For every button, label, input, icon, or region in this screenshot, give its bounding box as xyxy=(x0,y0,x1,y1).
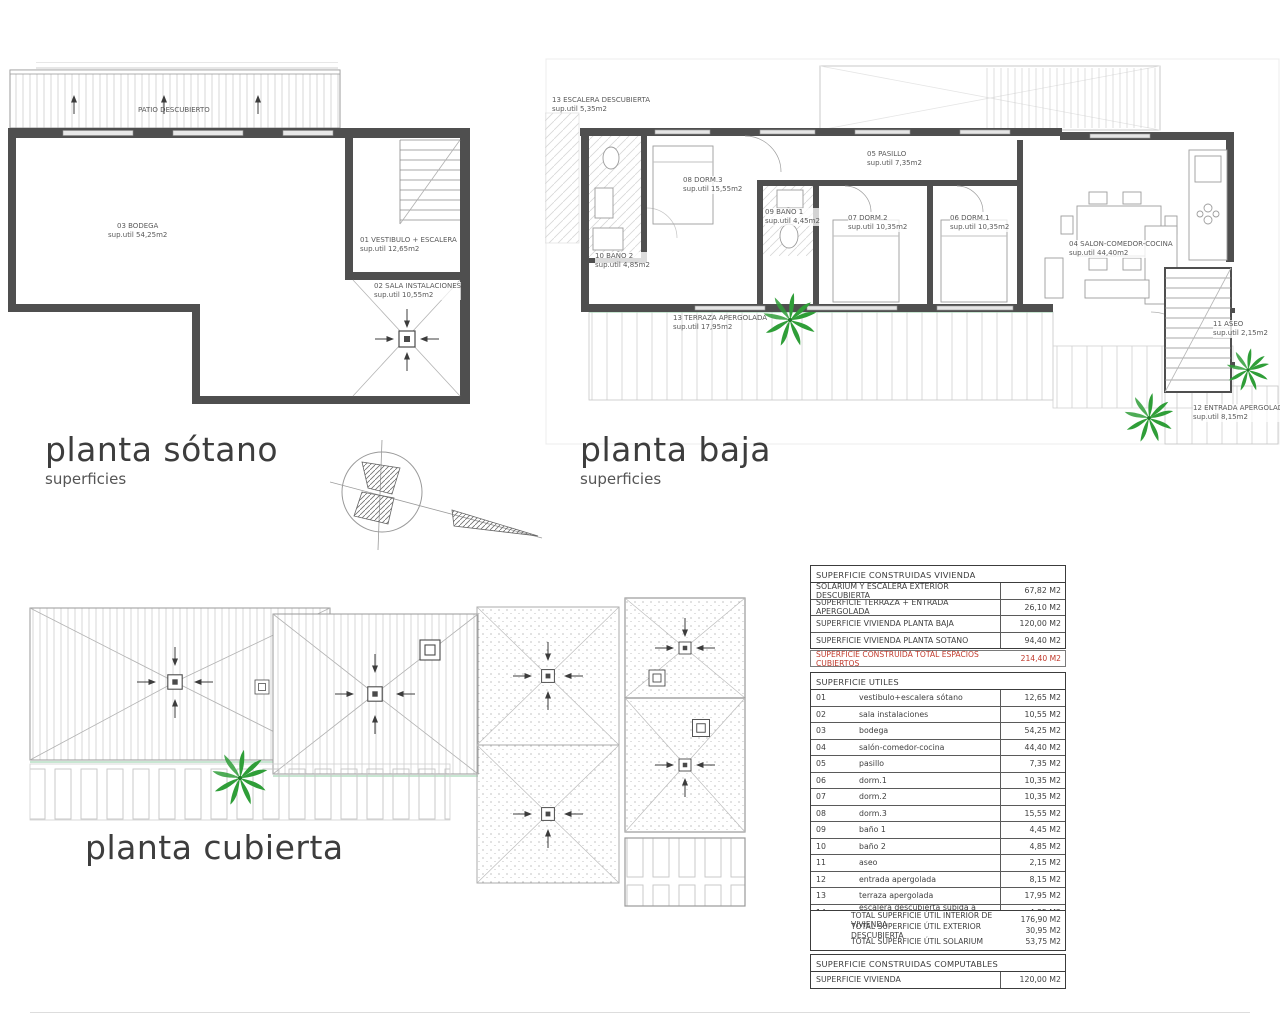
table-row: 05pasillo7,35 M2 xyxy=(811,756,1065,773)
drain-icon xyxy=(368,687,382,701)
table-row: SUPERFICIE VIVIENDA 120,00 M2 xyxy=(811,972,1065,988)
room-label-aseo: 11 ASEOsup.util 2,15m2 xyxy=(1213,320,1268,338)
table-row: 04salón-comedor-cocina44,40 M2 xyxy=(811,740,1065,757)
room-label-vestibulo: 01 VESTIBULO + ESCALERAsup.util 12,65m2 xyxy=(360,236,457,254)
room-label-bodega: 03 BODEGAsup.util 54,25m2 xyxy=(108,222,167,240)
table-row: 13terraza apergolada17,95 M2 xyxy=(811,888,1065,905)
table-row: 09baño 14,45 M2 xyxy=(811,822,1065,839)
table-row: SUPERFICIE VIVIENDA PLANTA SOTANO 94,40 … xyxy=(811,633,1065,649)
total-line: TOTAL SUPERFICIE ÚTIL SOLARIUM53,75 M2 xyxy=(811,936,1065,947)
room-label-bano1: 09 BAÑO 1sup.util 4,45m2 xyxy=(765,208,820,226)
room-label-dorm3: 08 DORM.3sup.util 15,55m2 xyxy=(683,176,742,194)
plan-cubierta-drawing xyxy=(25,592,765,922)
flat-roof-col1 xyxy=(477,607,619,883)
north-arrow-icon xyxy=(330,440,545,550)
room-label-dorm1: 06 DORM.1sup.util 10,35m2 xyxy=(950,214,1009,232)
room-label-terraza: 13 TERRAZA APERGOLADAsup.util 17,95m2 xyxy=(673,314,767,332)
table-row: SUPERFICIE VIVIENDA PLANTA BAJA 120,00 M… xyxy=(811,616,1065,633)
roof-vent-icon xyxy=(693,720,710,737)
chimney-icon xyxy=(420,640,440,660)
sheet-frame-line xyxy=(30,1012,1250,1013)
roof-vent-icon xyxy=(255,680,269,694)
drain-icon xyxy=(542,808,555,821)
plan-sotano: PATIO DESCUBIERTO 03 BODEGAsup.util 54,2… xyxy=(8,62,473,410)
room-label-salon: 04 SALON-COMEDOR-COCINAsup.util 44,40m2 xyxy=(1069,240,1173,258)
flat-roof-col2 xyxy=(625,598,745,906)
room-label-entrada: 12 ENTRADA APERGOLADAsup.util 8,15m2 xyxy=(1193,404,1280,422)
table-row: 06dorm.110,35 M2 xyxy=(811,773,1065,790)
stairs-icon xyxy=(400,140,460,224)
table-row: 10baño 24,85 M2 xyxy=(811,839,1065,856)
title-planta-sotano: planta sótano superficies xyxy=(45,430,278,488)
table-row: 08dorm.315,55 M2 xyxy=(811,806,1065,823)
room-label-bano2: 10 BAÑO 2sup.util 4,85m2 xyxy=(595,252,650,270)
drain-icon xyxy=(679,642,691,654)
table-header: SUPERFICIE CONSTRUIDAS VIVIENDA xyxy=(811,566,1065,583)
total-line: TOTAL SUPERFICIE ÚTIL EXTERIOR DESCUBIER… xyxy=(811,925,1065,936)
room-label-escalera-descubierta: 13 ESCALERA DESCUBIERTAsup.util 5,35m2 xyxy=(552,96,650,114)
drain-icon xyxy=(168,675,182,689)
architectural-drawing-sheet: PATIO DESCUBIERTO 03 BODEGAsup.util 54,2… xyxy=(0,0,1280,1024)
table-row: 01vestibulo+escalera sótano12,65 M2 xyxy=(811,690,1065,707)
table-row: 03bodega54,25 M2 xyxy=(811,723,1065,740)
table-row: 11aseo2,15 M2 xyxy=(811,855,1065,872)
table-header: SUPERFICIE UTILES xyxy=(811,673,1065,690)
table-row: 12entrada apergolada8,15 M2 xyxy=(811,872,1065,889)
sotano-walls xyxy=(8,128,470,404)
table-header: SUPERFICIE CONSTRUIDAS COMPUTABLES xyxy=(811,955,1065,972)
drain-icon xyxy=(399,331,415,347)
table-row: SUPERFICIE TERRAZA + ENTRADA APERGOLADA … xyxy=(811,600,1065,617)
drain-icon xyxy=(542,670,555,683)
plan-baja: 13 ESCALERA DESCUBIERTAsup.util 5,35m2 0… xyxy=(545,58,1280,446)
table-row: SOLARIUM Y ESCALERA EXTERIOR DESCUBIERTA… xyxy=(811,583,1065,600)
table-row: 02sala instalaciones10,55 M2 xyxy=(811,707,1065,724)
title-planta-cubierta: planta cubierta xyxy=(85,828,344,867)
room-label-dorm2: 07 DORM.2sup.util 10,35m2 xyxy=(848,214,907,232)
table-row: 07dorm.210,35 M2 xyxy=(811,789,1065,806)
plan-cubierta xyxy=(25,592,765,922)
title-planta-baja: planta baja superficies xyxy=(580,430,771,488)
table-superficie-construidas: SUPERFICIE CONSTRUIDAS VIVIENDA SOLARIUM… xyxy=(810,565,1066,649)
table-row-total-construida: SUPERFICIE CONSTRUIDA TOTAL ESPACIOS CUB… xyxy=(810,650,1066,667)
chimney-icon xyxy=(649,670,665,686)
table-superficie-utiles: SUPERFICIE UTILES 01vestibulo+escalera s… xyxy=(810,672,1066,921)
room-label-pasillo: 05 PASILLOsup.util 7,35m2 xyxy=(867,150,922,168)
room-label-patio: PATIO DESCUBIERTO xyxy=(138,106,210,115)
drain-icon xyxy=(679,759,691,771)
table-superficie-computables: SUPERFICIE CONSTRUIDAS COMPUTABLES SUPER… xyxy=(810,954,1066,989)
table-totals-utiles: TOTAL SUPERFICIE ÚTIL INTERIOR DE VIVIEN… xyxy=(810,910,1066,951)
roof-panel-b xyxy=(273,614,478,776)
room-label-sala-instalaciones: 02 SALA INSTALACIONESsup.util 10,55m2 xyxy=(374,282,461,300)
furniture xyxy=(593,146,1227,304)
